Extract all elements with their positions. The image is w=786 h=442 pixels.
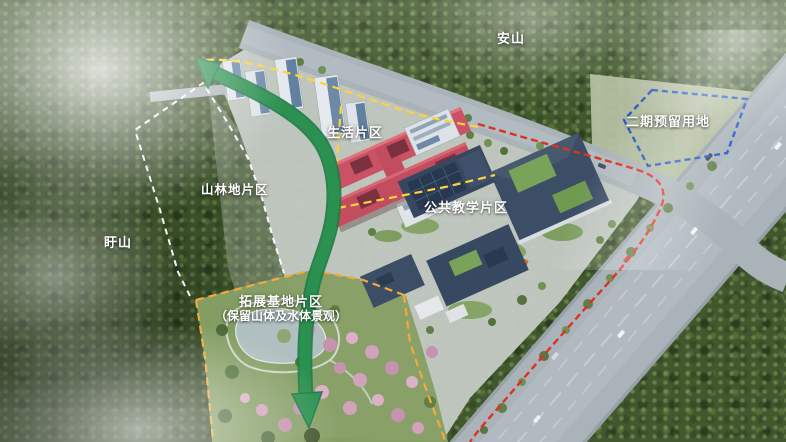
site-plan-scene xyxy=(0,0,786,442)
site-plan-rendering: 安山 二期预留用地 生活片区 山林地片区 盱山 公共教学片区 拓展基地片区 （保… xyxy=(0,0,786,442)
label-expansion-zone: 拓展基地片区 （保留山体及水体景观） xyxy=(215,294,347,324)
label-expansion-zone-line1: 拓展基地片区 xyxy=(215,294,347,309)
label-west-mountain: 盱山 xyxy=(104,232,132,251)
label-phase2-reserved: 二期预留用地 xyxy=(626,111,710,130)
label-living-zone: 生活片区 xyxy=(327,122,383,141)
label-teaching-zone: 公共教学片区 xyxy=(424,197,508,216)
label-expansion-zone-line2: （保留山体及水体景观） xyxy=(215,309,347,324)
label-forest-zone: 山林地片区 xyxy=(201,179,269,198)
label-north-mountain: 安山 xyxy=(497,28,525,47)
